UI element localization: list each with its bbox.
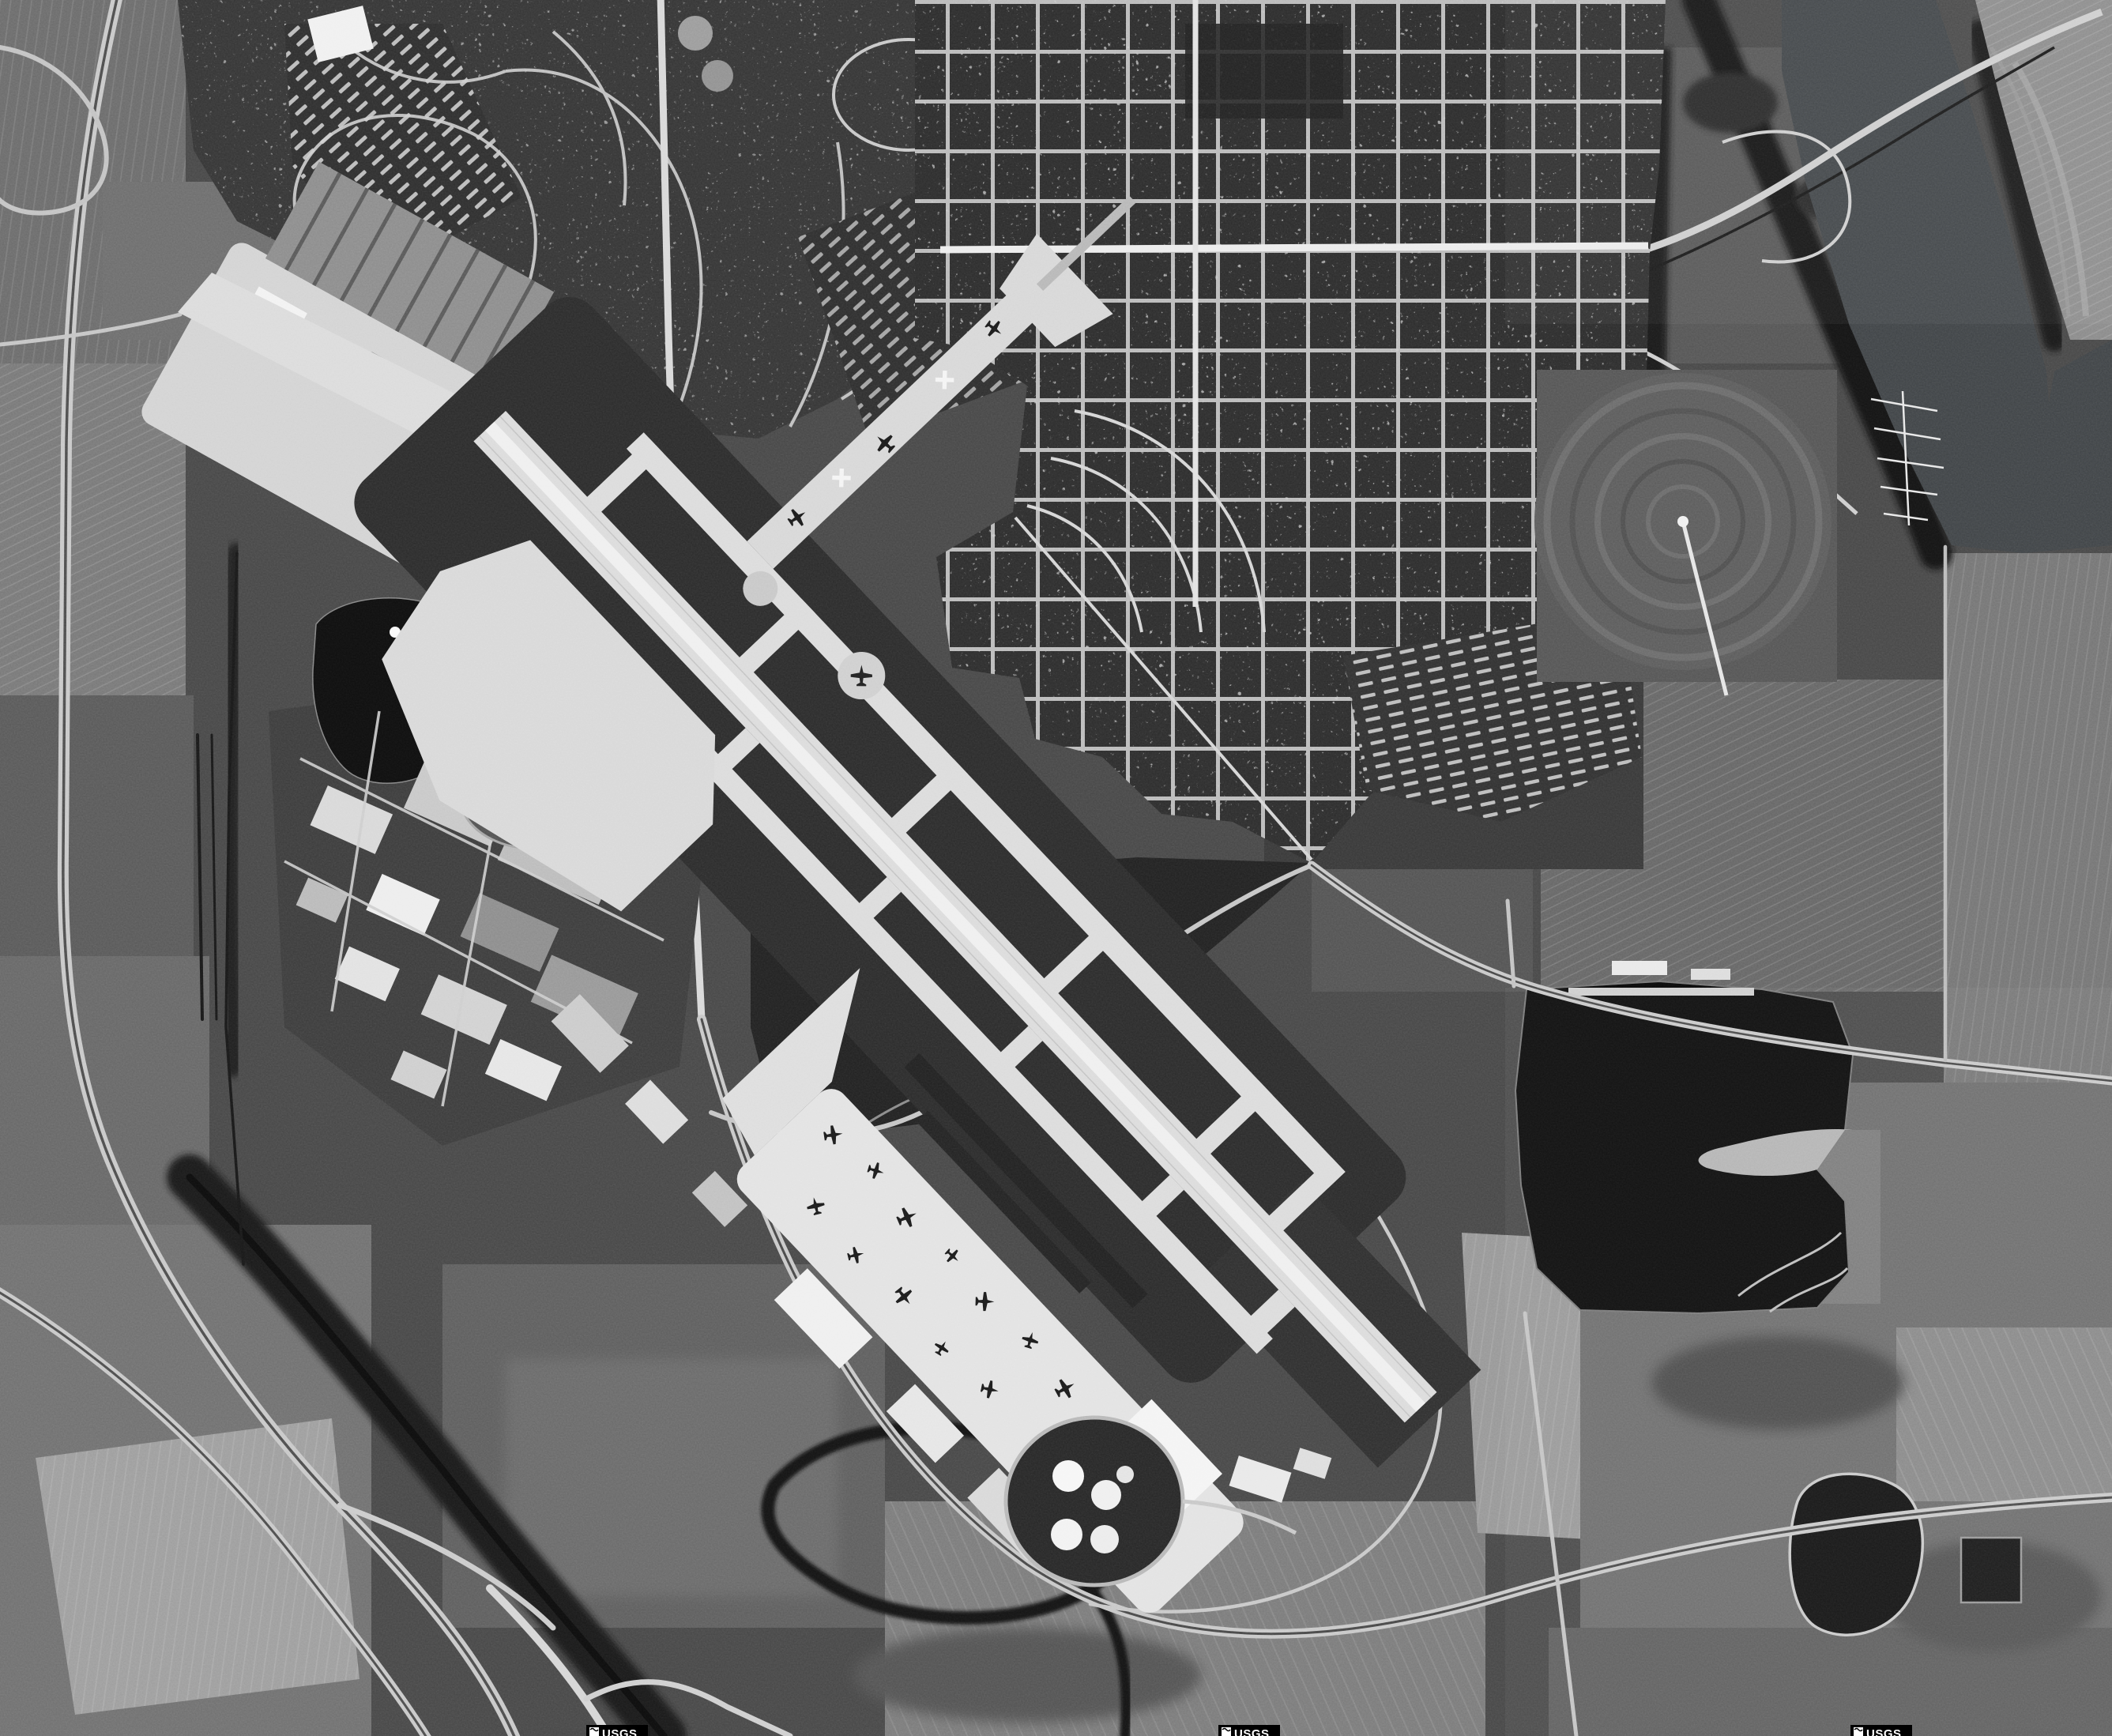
usgs-watermark-text: USGS — [1866, 1727, 1902, 1736]
usgs-watermark-text: USGS — [1234, 1727, 1270, 1736]
usgs-watermark-text: USGS — [602, 1727, 638, 1736]
usgs-watermark: USGS — [1218, 1725, 1280, 1736]
aerial-photo: USGS USGS USGS — [0, 0, 2112, 1736]
usgs-watermark: USGS — [586, 1725, 648, 1736]
usgs-watermark: USGS — [1850, 1725, 1912, 1736]
aerial-photo-canvas: USGS USGS USGS — [0, 0, 2112, 1736]
film-grain — [0, 0, 2112, 1736]
